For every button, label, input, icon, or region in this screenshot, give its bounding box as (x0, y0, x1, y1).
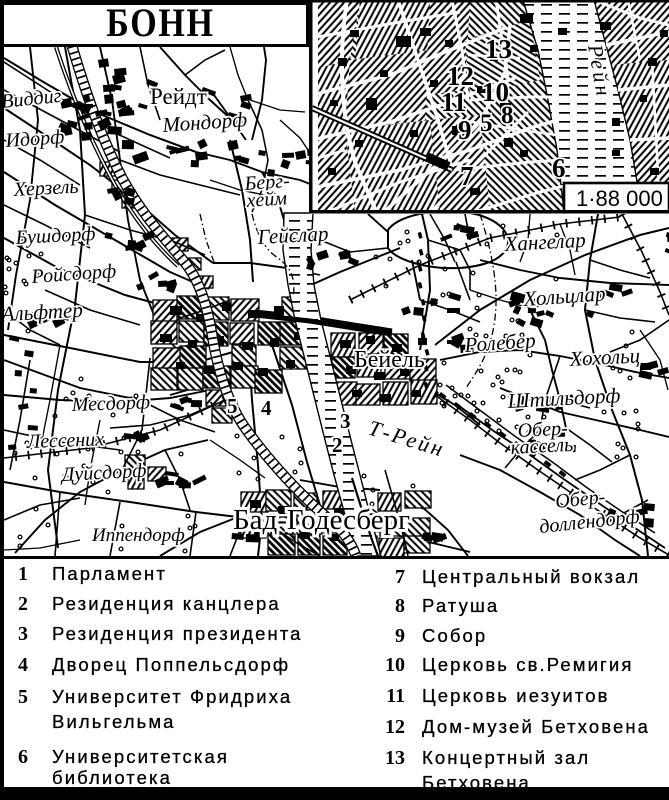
svg-text:Идорф: Идорф (4, 126, 65, 152)
svg-text:хейм: хейм (245, 187, 288, 212)
svg-text:Бушдорф: Бушдорф (14, 223, 96, 249)
svg-text:11: 11 (441, 87, 467, 117)
svg-text:7: 7 (460, 161, 474, 191)
svg-text:Дуйсдорф: Дуйсдорф (59, 460, 147, 487)
svg-text:Месдорф: Месдорф (70, 391, 150, 416)
svg-text:5: 5 (227, 394, 238, 418)
svg-text:9: 9 (458, 115, 472, 145)
svg-text:Гейслар: Гейслар (256, 221, 329, 249)
svg-text:Хохольц: Хохольц (568, 343, 641, 371)
svg-text:Бад-Годесберг: Бад-Годесберг (233, 504, 410, 536)
svg-text:кассель: кассель (510, 434, 574, 459)
svg-text:Бейель: Бейель (354, 347, 425, 373)
svg-text:3: 3 (340, 409, 351, 433)
svg-text:Лессених: Лессених (25, 428, 104, 453)
svg-text:6: 6 (552, 153, 566, 183)
svg-text:8: 8 (501, 102, 514, 129)
svg-text:Рейдт: Рейдт (150, 84, 207, 109)
svg-text:Ролебер: Ролебер (463, 328, 537, 357)
svg-text:5: 5 (480, 110, 493, 137)
svg-text:1·88 000: 1·88 000 (576, 186, 663, 211)
svg-text:Альфтер: Альфтер (0, 298, 83, 326)
svg-text:Иппендорф: Иппендорф (91, 525, 185, 546)
svg-text:13: 13 (485, 34, 512, 64)
svg-text:Хангелар: Хангелар (503, 228, 586, 256)
svg-text:Херзель: Херзель (12, 176, 79, 201)
svg-text:4: 4 (261, 396, 272, 420)
svg-text:2: 2 (332, 433, 343, 457)
